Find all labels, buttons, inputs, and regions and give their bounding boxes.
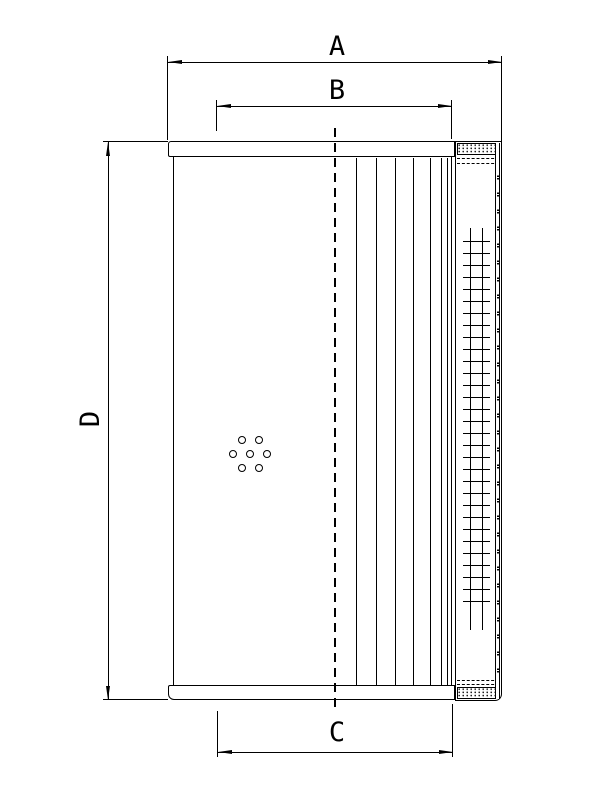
dim-d-arrow-bottom: [106, 686, 110, 700]
dim-d-line: [108, 142, 109, 700]
filter-element-technical-drawing: A B D C: [0, 0, 612, 792]
seam-stitch-marks: [497, 165, 500, 681]
pleat-line: [376, 158, 377, 685]
dim-d-arrow-top: [106, 142, 110, 156]
dim-b-ext-left: [216, 100, 217, 131]
body-hole: [238, 436, 246, 444]
dim-c-arrow-right: [439, 750, 453, 754]
bottom-end-cap: [168, 685, 455, 700]
top-end-cap: [168, 141, 455, 157]
dim-c-ext-left: [217, 711, 218, 757]
pleat-line: [447, 158, 448, 685]
crimp-band-bottom: [457, 687, 499, 699]
dim-a-ext-left: [167, 56, 168, 140]
dim-b-arrow-right: [438, 104, 452, 108]
body-hole: [255, 436, 263, 444]
dim-label-d-text: D: [77, 411, 104, 427]
dim-d-ext-top: [103, 141, 168, 142]
pleat-line: [395, 158, 396, 685]
dim-a-line: [168, 62, 502, 63]
dim-label-a: A: [329, 33, 345, 60]
pleat-line: [356, 158, 357, 685]
crimp-dash-top-1: [457, 158, 499, 159]
body-hole: [246, 450, 254, 458]
center-line: [334, 128, 335, 712]
crimp-dash-top-2: [457, 163, 499, 164]
body-hole: [263, 450, 271, 458]
dim-a-arrow-right: [488, 60, 502, 64]
dim-d-ext-bottom: [103, 699, 168, 700]
dim-b-arrow-left: [217, 104, 231, 108]
pleat-line: [413, 158, 414, 685]
dim-label-d: D: [75, 404, 105, 434]
element-body: [173, 157, 452, 685]
core-rungs: [463, 241, 490, 609]
pleat-line: [430, 158, 431, 685]
dim-a-ext-right: [501, 56, 502, 141]
crimp-band-top: [457, 143, 499, 155]
dim-c-line: [218, 752, 453, 753]
crimp-dash-bottom-2: [457, 684, 499, 685]
dim-label-b: B: [329, 77, 345, 104]
dim-b-line: [217, 106, 452, 107]
dim-a-arrow-left: [168, 60, 182, 64]
dim-b-ext-right: [451, 100, 452, 139]
pleat-line: [441, 158, 442, 685]
crimp-dash-bottom-1: [457, 680, 499, 681]
body-hole: [238, 464, 246, 472]
body-hole: [255, 464, 263, 472]
dim-label-c: C: [329, 719, 345, 746]
dim-c-ext-right: [452, 704, 453, 757]
body-hole: [229, 450, 237, 458]
dim-c-arrow-left: [218, 750, 232, 754]
